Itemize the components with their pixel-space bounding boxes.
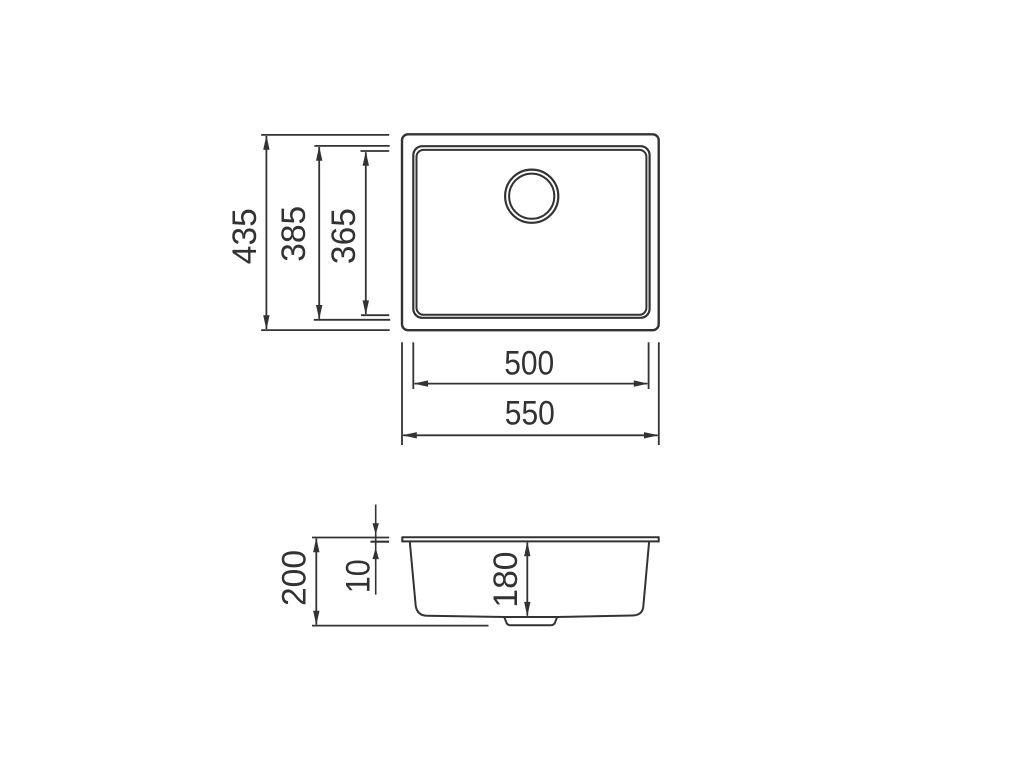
svg-text:200: 200 xyxy=(276,550,314,606)
svg-text:180: 180 xyxy=(487,552,525,608)
svg-text:10: 10 xyxy=(340,559,378,593)
svg-text:500: 500 xyxy=(504,344,554,382)
svg-text:435: 435 xyxy=(226,208,264,264)
svg-text:365: 365 xyxy=(325,208,363,264)
svg-text:385: 385 xyxy=(275,206,313,262)
svg-text:550: 550 xyxy=(505,395,555,433)
